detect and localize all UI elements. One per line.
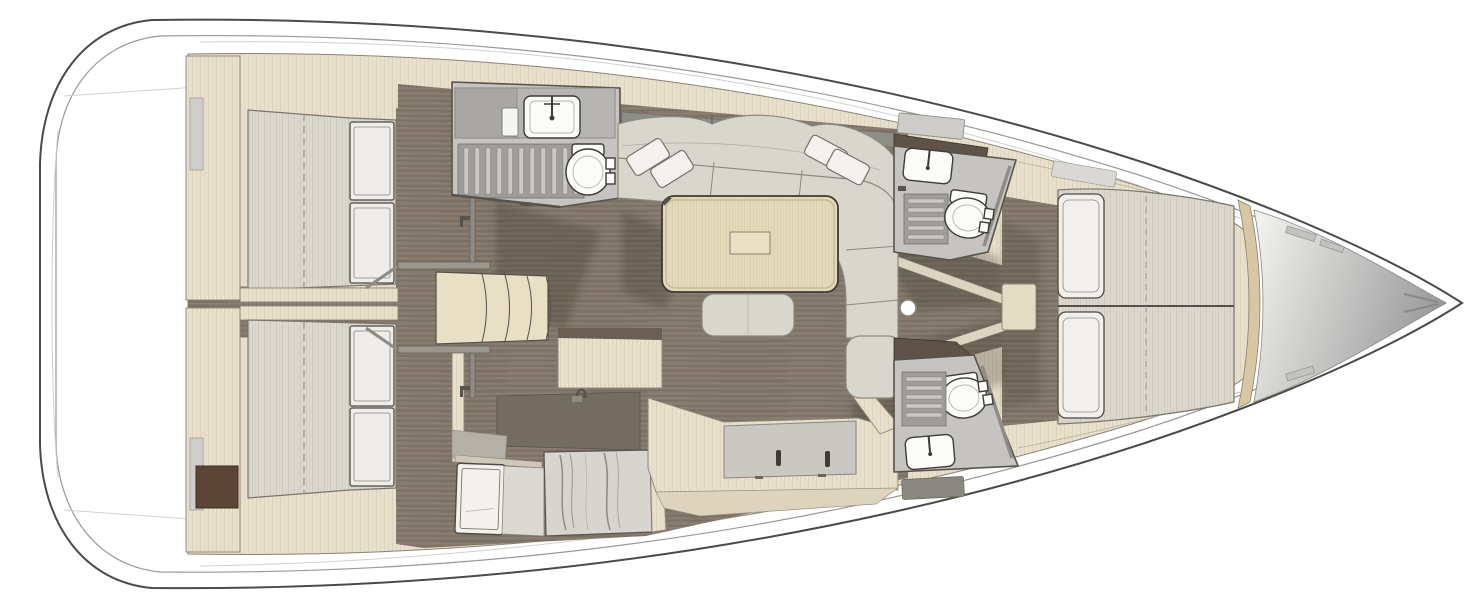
brown-hatch — [196, 466, 238, 508]
berth-head-board — [240, 306, 398, 320]
boat-floor-plan — [0, 0, 1482, 608]
pillow — [1058, 194, 1104, 298]
table-center-inlay — [730, 232, 770, 254]
panel-foot — [818, 474, 826, 477]
sink — [905, 434, 956, 470]
forepeak-locker — [1254, 210, 1446, 402]
locker-door — [350, 326, 394, 406]
berth-foot-board — [240, 288, 398, 302]
forepeak — [1254, 210, 1446, 402]
panel-foot — [755, 476, 763, 479]
faucet-icon — [929, 436, 930, 452]
slot-handle — [825, 451, 830, 467]
galley-front-panel — [502, 466, 544, 536]
partition-lower — [470, 352, 475, 398]
locker-door — [350, 122, 394, 200]
aft-head — [452, 82, 620, 207]
sink — [902, 148, 953, 185]
handrail-bottom — [398, 346, 490, 353]
tissue-box — [502, 108, 518, 136]
salon-table — [662, 196, 838, 292]
mirror — [190, 98, 203, 170]
fridge-door — [455, 463, 505, 535]
locker-door — [350, 203, 394, 283]
slot-handle — [776, 450, 781, 466]
handrail-top — [398, 262, 490, 269]
marble-counter — [544, 450, 652, 536]
wardrobe — [186, 308, 240, 552]
partition-upper — [470, 198, 475, 266]
mast-step — [900, 300, 916, 316]
floor-plan-svg — [0, 0, 1482, 608]
bath-mat — [902, 476, 965, 499]
aft-port-cabin-floor — [396, 108, 454, 300]
side-cabinet-recessed-panel — [724, 421, 856, 478]
pillow — [1058, 312, 1104, 418]
galley-backsplash — [497, 392, 640, 450]
locker-door — [350, 408, 394, 486]
galley-cabinet-top-edge — [558, 328, 662, 340]
cabinet-handle — [898, 186, 906, 191]
cabin-step — [1002, 284, 1036, 330]
wardrobe — [186, 56, 240, 300]
